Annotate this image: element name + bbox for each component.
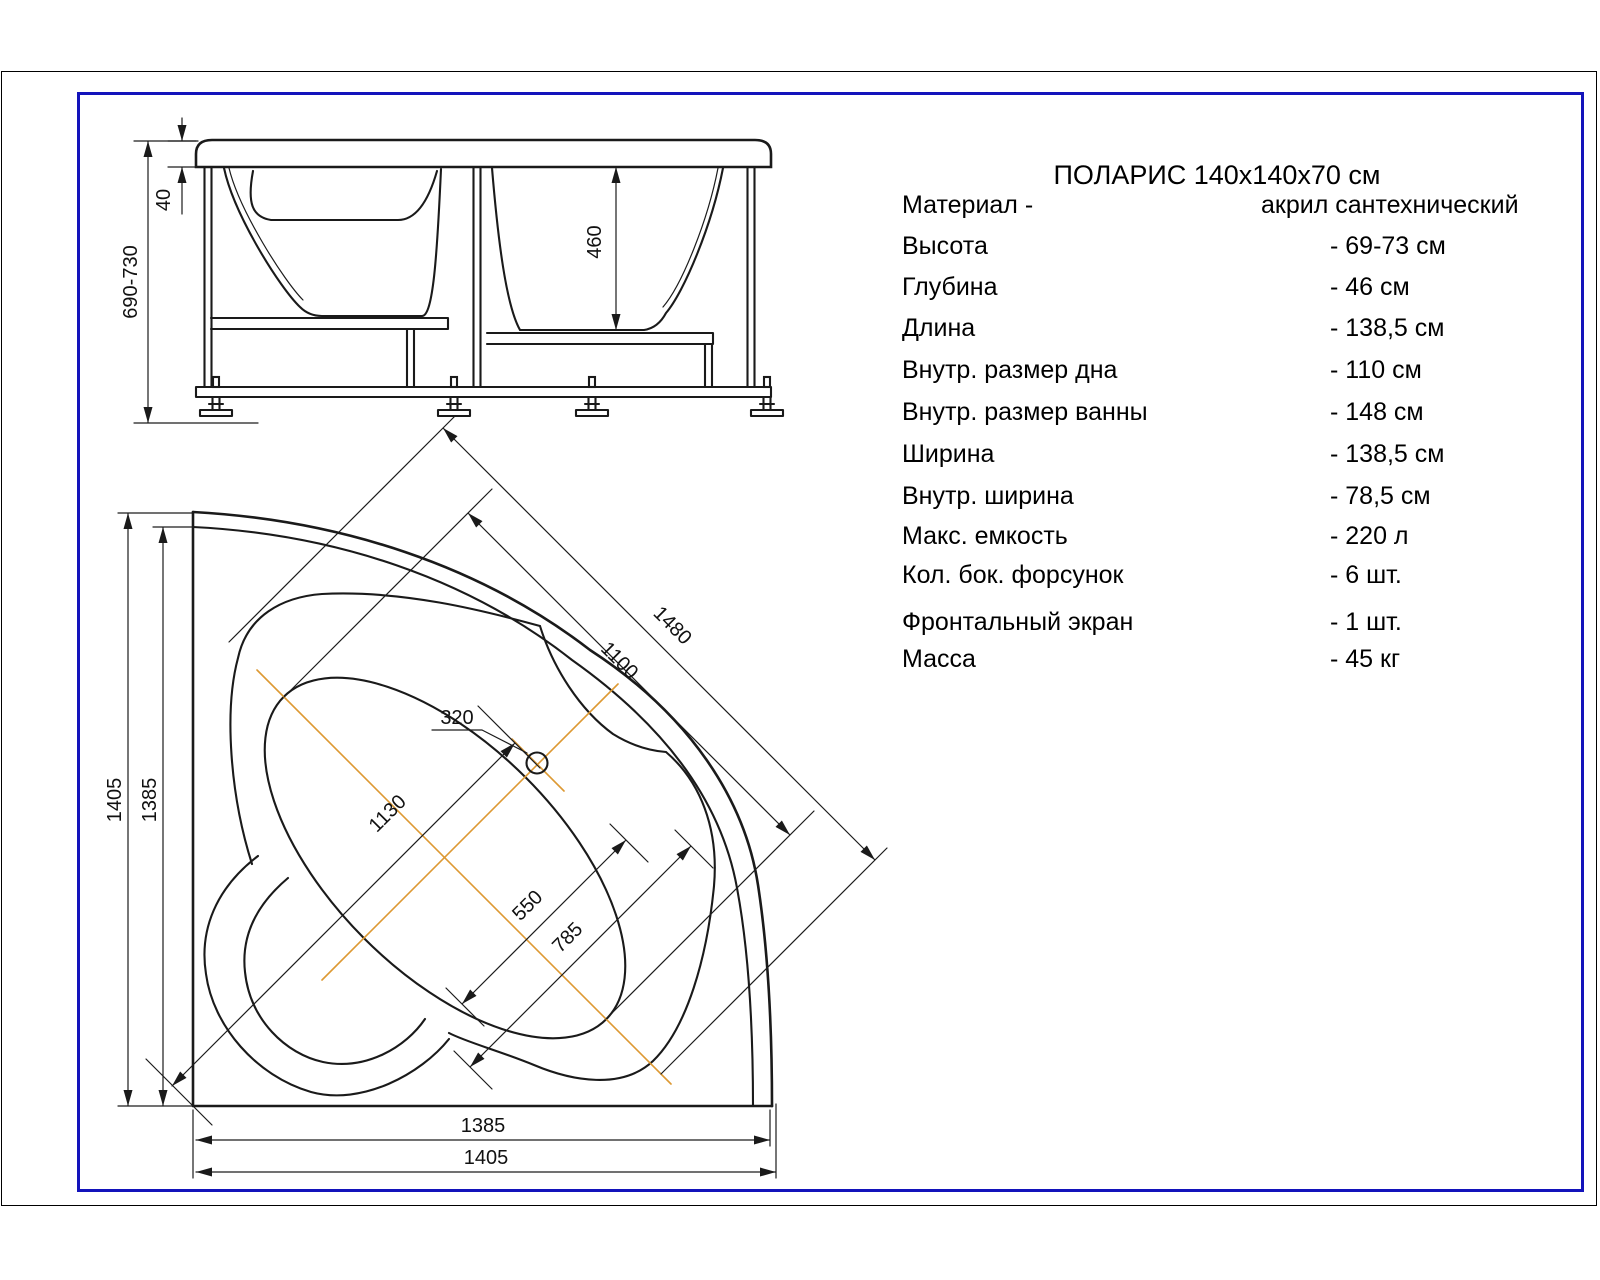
svg-text:550: 550 — [508, 886, 547, 925]
front-view: 40 690-730 460 — [120, 118, 783, 423]
bowl-back-edge-left — [251, 171, 437, 220]
dim-height-690-730: 690-730 — [120, 141, 258, 423]
svg-text:1130: 1130 — [365, 791, 411, 837]
support-board-right — [487, 333, 713, 387]
adjustable-feet — [200, 397, 783, 416]
bowl-rim-contour — [230, 593, 714, 1079]
svg-text:1405: 1405 — [464, 1147, 509, 1169]
dim-rim-40: 40 — [153, 118, 198, 214]
technical-drawing: 40 690-730 460 — [0, 0, 1600, 1280]
bowl-wall-thickness-right — [663, 168, 718, 307]
plan-view: 1480 1100 1130 550 — [104, 416, 887, 1178]
dim-axis-1130: 1130 — [146, 706, 540, 1125]
svg-text:1100: 1100 — [596, 638, 642, 684]
frame-bottom-rail — [196, 387, 771, 397]
drawing-page: ПОЛАРИС 140x140x70 см Материал -акрил са… — [0, 0, 1600, 1280]
tub-rim-section — [196, 140, 771, 167]
svg-text:460: 460 — [584, 225, 606, 258]
svg-text:1480: 1480 — [649, 602, 696, 649]
dim-left-1385: 1385 — [139, 527, 193, 1106]
dim-width-550: 550 — [446, 824, 648, 1026]
bowl-section-left — [224, 168, 441, 316]
dim-drain-320: 320 — [432, 707, 527, 753]
bowl-wall-thickness-left — [229, 168, 303, 300]
svg-text:785: 785 — [548, 918, 587, 957]
frame-posts — [205, 167, 755, 387]
svg-text:320: 320 — [440, 707, 473, 729]
support-board-left — [211, 318, 448, 387]
svg-text:40: 40 — [153, 189, 175, 211]
leveling-pins — [213, 377, 770, 387]
svg-text:1405: 1405 — [104, 778, 126, 823]
svg-text:1385: 1385 — [139, 778, 161, 823]
bowl-section-right — [492, 168, 723, 330]
svg-text:690-730: 690-730 — [120, 245, 142, 318]
svg-text:1385: 1385 — [461, 1115, 506, 1137]
dim-depth-460: 460 — [584, 167, 621, 330]
